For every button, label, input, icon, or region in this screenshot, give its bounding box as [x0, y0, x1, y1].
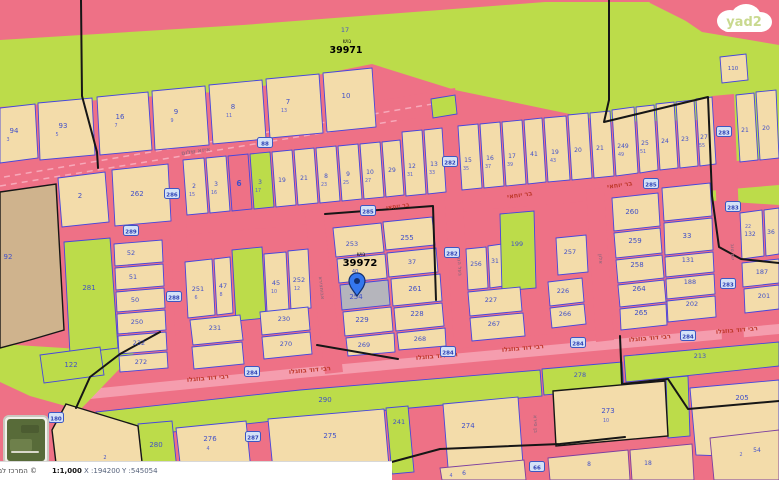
parcel-subnumber: 12 — [294, 286, 300, 292]
parcel-subnumber: 13 — [281, 108, 287, 114]
road-badge-number: 66 — [533, 466, 541, 472]
parcel-265[interactable] — [620, 304, 667, 330]
parcel-subnumber: 33 — [429, 170, 435, 176]
parcel-number: 256 — [470, 261, 482, 268]
parcel-54[interactable] — [710, 430, 779, 480]
parcel-number: 16 — [116, 113, 125, 121]
parcel-subnumber: 27 — [365, 178, 371, 184]
parcel-number: 228 — [410, 310, 423, 318]
map-canvas[interactable]: 2902782139294393516799811713101102262215… — [0, 0, 779, 480]
overview-map[interactable] — [3, 415, 49, 465]
parcel-number: 199 — [511, 240, 523, 248]
parcel-10[interactable] — [323, 68, 376, 132]
parcel-number: 276 — [203, 435, 217, 443]
overview-map-image — [7, 419, 45, 461]
parcel-subnumber: 5 — [55, 132, 58, 138]
parcel-number: 280 — [149, 441, 162, 449]
parcel-number: 27 — [700, 134, 708, 141]
parcel-number: 270 — [280, 340, 292, 348]
parcel-number: 6 — [462, 470, 466, 477]
map-viewport[interactable]: 2902782139294393516799811713101102262215… — [0, 0, 779, 480]
road-badge-number: 285 — [362, 210, 374, 216]
parcel-subnumber: 49 — [618, 152, 624, 158]
parcel-number: 262 — [130, 190, 143, 198]
parcel-number: 47 — [219, 282, 227, 290]
parcel-50[interactable] — [116, 288, 165, 312]
parcel-subnumber: 37 — [485, 164, 491, 170]
parcel-number: 19 — [278, 177, 286, 184]
road-badge-number: 284 — [572, 342, 584, 348]
parcel-number: 12 — [408, 163, 416, 170]
parcel-number: 258 — [630, 261, 643, 269]
parcel-number: 251 — [192, 285, 204, 293]
parcel-number: 16 — [486, 155, 494, 162]
parcel-number: 205 — [735, 394, 748, 402]
road-badge-number: 289 — [125, 230, 137, 236]
parcel-number: 2 — [78, 192, 82, 200]
parcel-subnumber: 51 — [640, 149, 646, 155]
parcel-7[interactable] — [266, 74, 323, 138]
block-label: גוש — [343, 38, 352, 45]
parcel-number: 7 — [286, 98, 290, 106]
parcel[interactable] — [431, 95, 457, 118]
parcel-subnumber: 4 — [449, 473, 452, 479]
parcel-number: 37 — [408, 258, 416, 266]
parcel-subnumber: 43 — [550, 158, 556, 164]
parcel-number: 273 — [601, 407, 614, 415]
block-label: 39972 — [343, 258, 378, 269]
parcel-number: 268 — [414, 335, 426, 343]
road-badge-number: 284 — [442, 351, 454, 357]
parcel-subnumber: 10 — [271, 289, 277, 295]
status-bar: © המרכז למיפוי 1:1,000 X :194200 Y :5450… — [0, 461, 392, 480]
parcel-8[interactable] — [316, 146, 340, 203]
parcel-3[interactable] — [206, 156, 230, 213]
parcel-number: 2 — [192, 183, 196, 190]
parcel-256[interactable] — [466, 247, 488, 290]
parcel-number: 19 — [551, 149, 559, 156]
parcel-8[interactable] — [209, 80, 266, 144]
parcel-subnumber: 10 — [603, 418, 609, 424]
parcel-9[interactable] — [338, 144, 362, 201]
parcel-number: 265 — [634, 309, 647, 317]
parcel-24[interactable] — [656, 102, 678, 170]
parcel-number: 17 — [508, 153, 516, 160]
parcel-number: 269 — [358, 341, 370, 349]
parcel-18[interactable] — [630, 444, 694, 480]
parcel-269[interactable] — [346, 333, 395, 356]
parcel-subnumber: 31 — [407, 172, 413, 178]
parcel-2[interactable] — [58, 172, 109, 227]
street-name: יום טוב — [729, 244, 736, 261]
parcel-subnumber: 16 — [211, 190, 217, 196]
parcel-number: 259 — [628, 237, 641, 245]
road-badge-number: 286 — [166, 193, 178, 199]
parcel[interactable] — [232, 247, 266, 321]
road-badge-number: 287 — [247, 436, 259, 442]
x-coordinate: X :194200 — [84, 467, 120, 475]
parcel-number: 8 — [324, 173, 328, 180]
parcel-number: 255 — [400, 234, 413, 242]
road-badge-number: 283 — [722, 283, 734, 289]
parcel-subnumber: 39 — [507, 162, 513, 168]
parcel-subnumber: 4 — [206, 446, 209, 452]
parcel-16[interactable] — [97, 92, 152, 155]
parcel-number: 23 — [681, 136, 689, 143]
parcel-number: 41 — [530, 151, 538, 158]
logo-text: yad2 — [726, 15, 762, 30]
parcel-number: 3 — [258, 179, 262, 186]
parcel-25[interactable] — [636, 105, 658, 173]
parcel-number: 275 — [323, 432, 336, 440]
parcel-number: 290 — [318, 396, 331, 404]
parcel-number: 93 — [59, 122, 68, 130]
parcel-subnumber: 35 — [463, 166, 469, 172]
parcel-subnumber: 25 — [343, 180, 349, 186]
parcel-number: 260 — [625, 208, 638, 216]
road-badge-number: 284 — [246, 371, 258, 377]
parcel-subnumber: 2 — [739, 452, 742, 458]
parcel-258[interactable] — [616, 255, 664, 283]
parcel-subnumber: 55 — [699, 143, 705, 149]
parcel-27[interactable] — [696, 97, 716, 166]
parcel-number: 110 — [728, 66, 739, 72]
road-badge-number: 283 — [727, 206, 739, 212]
parcel-subnumber: 6 — [194, 295, 197, 301]
parcel[interactable] — [192, 342, 244, 369]
parcel-subnumber: 17 — [255, 188, 261, 194]
parcel-281[interactable] — [64, 238, 118, 354]
parcel-number: 50 — [131, 296, 139, 304]
parcel-number: 8 — [231, 103, 235, 111]
parcel-52[interactable] — [114, 240, 163, 266]
parcel-number: 241 — [393, 418, 405, 426]
parcel-number: 257 — [564, 248, 576, 256]
parcel-number: 10 — [342, 92, 351, 100]
parcel-number: 3 — [214, 181, 218, 188]
parcel-number: 266 — [559, 310, 571, 318]
parcel-number: 51 — [129, 273, 137, 281]
parcel-number: 252 — [293, 276, 305, 284]
parcel-92[interactable] — [0, 184, 64, 348]
parcel-number: 20 — [762, 125, 770, 132]
parcel-number: 249 — [617, 143, 629, 150]
parcel-number: 21 — [300, 175, 308, 182]
parcel-number: 15 — [464, 157, 472, 164]
parcel-number: 36 — [767, 229, 775, 236]
parcel-subnumber: 7 — [114, 123, 117, 129]
parcel-subnumber: 3 — [6, 137, 9, 143]
parcel-number: 52 — [127, 249, 135, 257]
road-badge-number: 282 — [446, 252, 458, 258]
parcel-number: 226 — [557, 287, 569, 295]
road-badge-number: 282 — [444, 161, 456, 167]
block-label: 17 — [341, 26, 349, 34]
parcel-number: 122 — [64, 361, 77, 369]
parcel-number: 253 — [346, 240, 358, 248]
road-badge-number: 180 — [50, 417, 62, 423]
parcel-number: 10 — [366, 169, 374, 176]
y-coordinate: Y :545054 — [122, 467, 158, 475]
parcel-number: 131 — [682, 256, 694, 264]
parcel-number: 132 — [744, 231, 756, 238]
parcel-number: 231 — [209, 324, 221, 332]
parcel-number: 229 — [355, 316, 368, 324]
parcel-3[interactable] — [250, 152, 274, 209]
parcel-number: 232 — [133, 339, 145, 347]
parcel-number: 274 — [461, 422, 475, 430]
parcel-number: 54 — [753, 447, 761, 454]
parcel-number: 202 — [686, 300, 698, 308]
parcel-number: 187 — [756, 268, 768, 276]
parcel-number: 213 — [694, 352, 706, 360]
parcel-number: 272 — [135, 358, 147, 366]
road-badge-number: 284 — [682, 335, 694, 341]
map-scale: 1:1,000 — [52, 467, 82, 475]
parcel-number: 45 — [272, 279, 280, 287]
parcel-subnumber: 8 — [219, 292, 222, 298]
parcel-23[interactable] — [676, 100, 698, 168]
road-badge-number: 283 — [718, 131, 730, 137]
parcel-number: 278 — [574, 371, 586, 379]
pin-core — [354, 278, 360, 284]
parcel-number: 21 — [596, 145, 604, 152]
parcel-number: 8 — [587, 461, 591, 468]
parcel-number: 92 — [4, 253, 13, 261]
parcel-number: 9 — [174, 108, 178, 116]
parcel-number: 264 — [632, 285, 646, 293]
parcel-number: 33 — [683, 232, 692, 240]
parcel-subnumber: 15 — [189, 192, 195, 198]
parcel-subnumber: 9 — [170, 118, 173, 124]
parcel-number: 94 — [10, 127, 19, 135]
parcel-51[interactable] — [115, 264, 164, 290]
parcel-number: 250 — [131, 318, 143, 326]
parcel-number: 188 — [684, 278, 696, 286]
parcel-number: 29 — [388, 167, 396, 174]
parcel-number: 6 — [236, 179, 241, 188]
road-badge-number: 88 — [261, 142, 269, 148]
attribution-text: © המרכז למיפוי — [0, 467, 37, 475]
parcel-number: 18 — [644, 460, 652, 467]
parcel-number: 9 — [346, 171, 350, 178]
parcel-subnumber: 23 — [321, 182, 327, 188]
parcel-number: 31 — [491, 258, 499, 265]
parcel-9[interactable] — [152, 86, 209, 150]
parcel-number: 20 — [574, 147, 582, 154]
parcel-subnumber: 11 — [226, 113, 232, 119]
parcel-number: 13 — [430, 161, 438, 168]
parcel-number: 201 — [758, 292, 770, 300]
road-badge-number: 288 — [168, 296, 180, 302]
parcel-number: 25 — [641, 140, 649, 147]
road-badge-number: 285 — [645, 183, 657, 189]
street-name: אלון — [597, 254, 604, 265]
block-label: 39971 — [329, 45, 362, 56]
parcel-199[interactable] — [500, 211, 536, 291]
block-label: גוש — [357, 251, 366, 258]
parcel-number: 24 — [661, 138, 669, 145]
parcel-94[interactable] — [0, 104, 38, 163]
street-name: בן סירא — [532, 415, 539, 433]
parcel-number: 230 — [278, 315, 290, 323]
parcel-number: 227 — [485, 296, 497, 304]
parcel-number: 21 — [741, 127, 749, 134]
parcel-number: 267 — [488, 320, 500, 328]
parcel-subnumber: 22 — [745, 224, 751, 230]
road — [586, 188, 614, 342]
parcel[interactable] — [662, 183, 712, 221]
parcel-number: 281 — [82, 284, 95, 292]
parcel-number: 261 — [408, 285, 421, 293]
